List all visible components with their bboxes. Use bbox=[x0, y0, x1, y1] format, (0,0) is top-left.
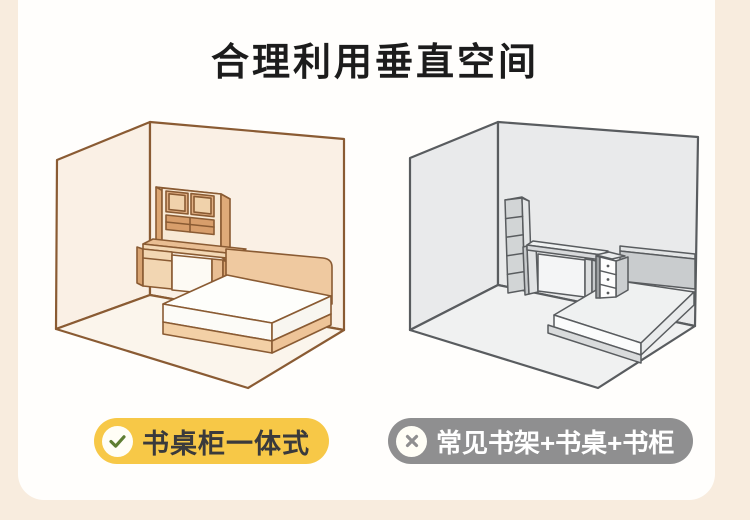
cross-icon bbox=[396, 426, 427, 457]
right-badge-label: 常见书架+书桌+书柜 bbox=[436, 423, 674, 460]
left-badge-label: 书桌柜一体式 bbox=[142, 422, 310, 461]
left-room-illustration bbox=[40, 108, 360, 398]
page-title: 合理利用垂直空间 bbox=[0, 31, 750, 86]
check-icon bbox=[102, 426, 133, 457]
right-room-illustration bbox=[388, 108, 718, 398]
drawer-cabinet bbox=[596, 252, 628, 298]
right-badge: 常见书架+书桌+书柜 bbox=[388, 418, 693, 464]
left-badge: 书桌柜一体式 bbox=[94, 418, 329, 464]
